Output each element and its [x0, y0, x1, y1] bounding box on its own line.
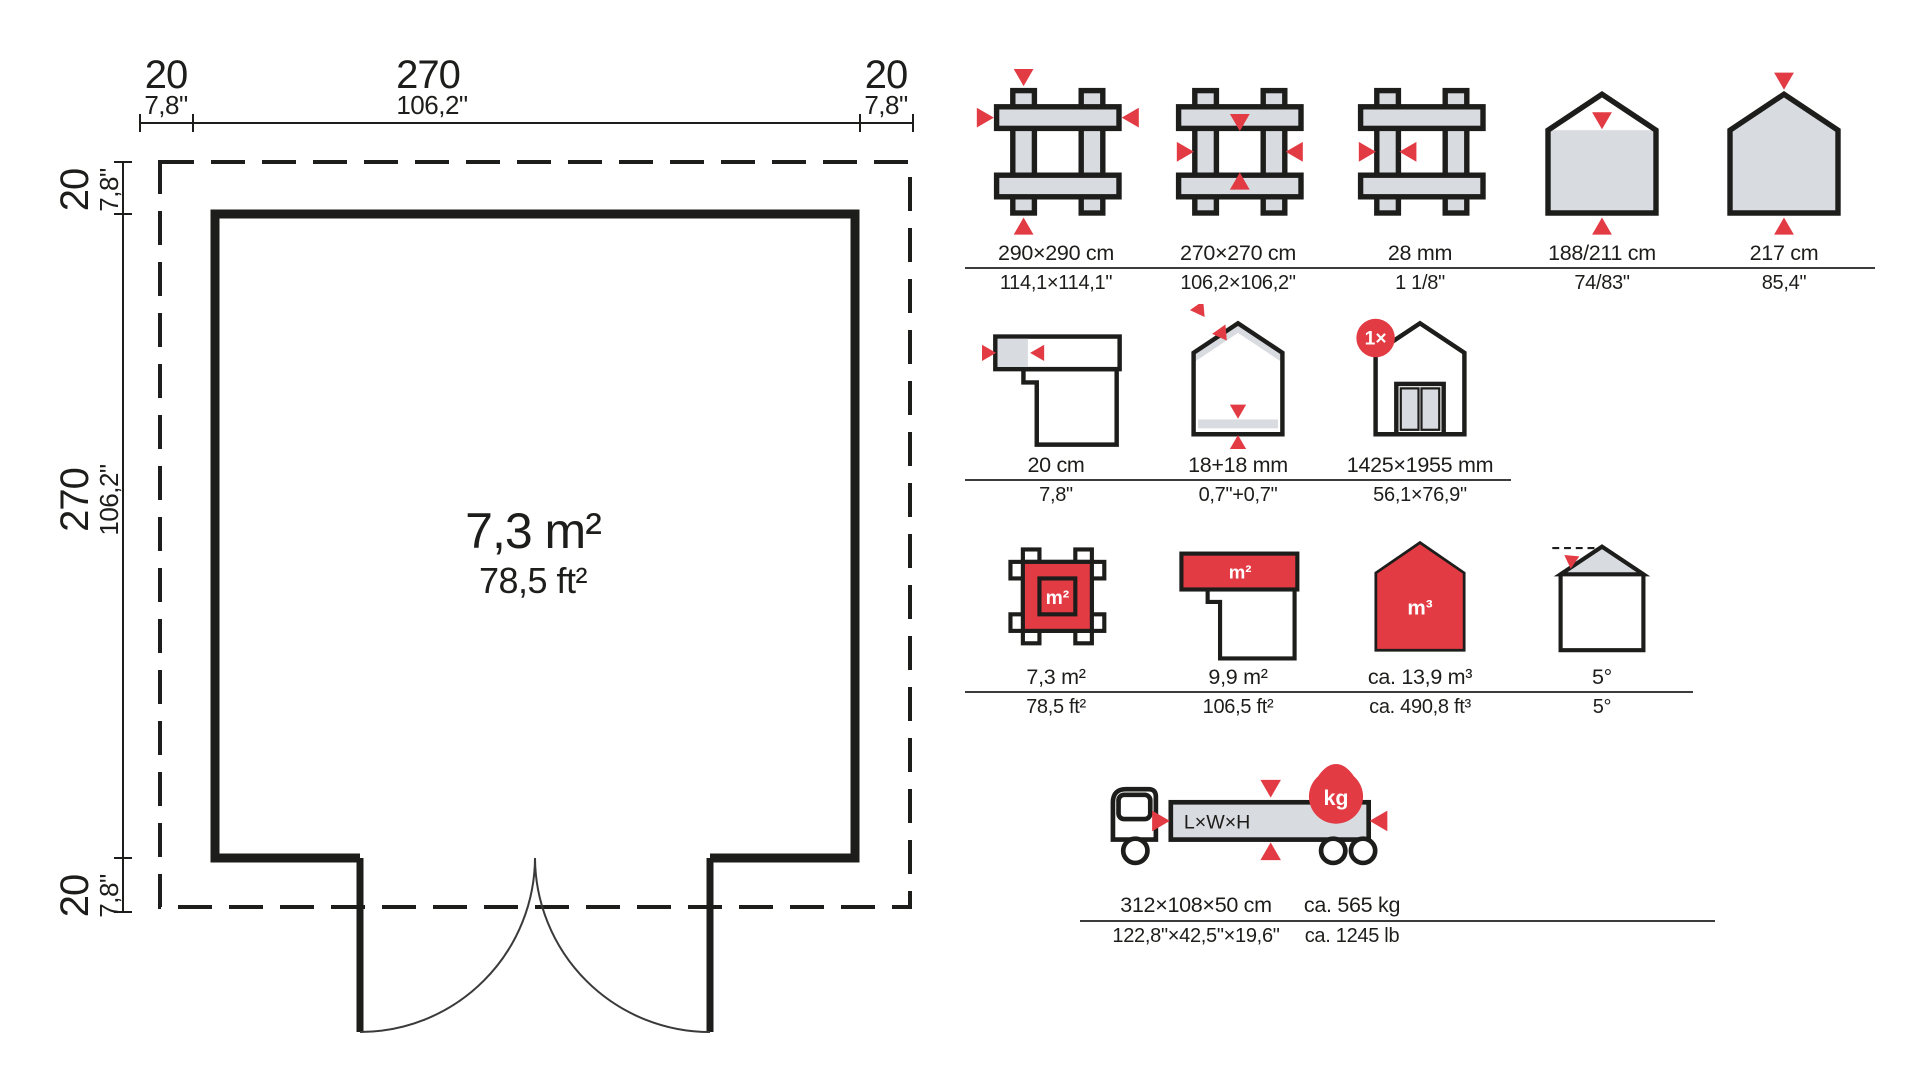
left-dim-label-bottom: 20 7,8": [53, 874, 124, 918]
metric-labels: 20 cm 18+18 mm 1425×1955 mm: [965, 452, 1511, 479]
spec-cell: [965, 304, 1147, 452]
spec-cell: m²: [965, 526, 1147, 664]
spec-metric-label: 7,3 m²: [965, 664, 1147, 691]
spec-cell: [1147, 60, 1329, 240]
spec-cell: [965, 60, 1147, 240]
spec-cell: [1329, 60, 1511, 240]
top-dimension-line: [140, 114, 913, 132]
spec-cell: [1693, 60, 1875, 240]
spec-metric-label: 290×290 cm: [965, 240, 1147, 267]
spec-imperial-label: 106,5 ft²: [1147, 693, 1329, 721]
spec-metric-label: 1425×1955 mm: [1329, 452, 1511, 479]
spec-metric-label: 18+18 mm: [1147, 452, 1329, 479]
package-dims-label: L×W×H: [1184, 811, 1250, 833]
spec-metric-label: 270×270 cm: [1147, 240, 1329, 267]
svg-text:20: 20: [53, 169, 97, 212]
unit-label: m²: [1229, 561, 1252, 582]
door-leaves: [360, 858, 710, 1032]
imperial-labels: 78,5 ft² 106,5 ft² ca. 490,8 ft³ 5°: [965, 693, 1693, 721]
spec-cell: m³: [1329, 526, 1511, 664]
spec-imperial-label: ca. 1245 lb: [1272, 922, 1432, 950]
spec-metric-label: 188/211 cm: [1511, 240, 1693, 267]
door-swing-arcs: [360, 858, 710, 1032]
svg-text:7,8": 7,8": [864, 90, 908, 120]
spec-imperial-label: 1 1/8": [1329, 269, 1511, 297]
svg-text:7,8": 7,8": [144, 90, 188, 120]
quantity-badge-label: 1×: [1365, 329, 1387, 350]
svg-text:7,8": 7,8": [94, 874, 124, 918]
imperial-labels: 7,8" 0,7"+0,7" 56,1×76,9": [965, 481, 1511, 509]
spec-row-3: m² m² m³ 7,3 m² 9,9 m²: [965, 522, 1693, 721]
spec-imperial-label: 106,2×106,2": [1147, 269, 1329, 297]
unit-label: m²: [1046, 588, 1070, 609]
spec-imperial-label: 5°: [1511, 693, 1693, 721]
spec-cell: [1147, 304, 1329, 452]
spec-imperial-label: 74/83": [1511, 269, 1693, 297]
spec-cell: 1×: [1329, 304, 1511, 452]
transport-dimensions-icon: L×W×H kg: [1098, 750, 1406, 890]
svg-text:7,8": 7,8": [94, 168, 124, 212]
spec-row-2: 1× 20 cm 18+18 mm 1425×1955 mm 7,8" 0,7"…: [965, 302, 1511, 509]
weight-unit-label: kg: [1323, 786, 1348, 810]
imperial-labels: 122,8"×42,5"×19,6" ca. 1245 lb: [1080, 922, 1715, 950]
metric-labels: 312×108×50 cm ca. 565 kg: [1080, 892, 1715, 920]
spec-imperial-label: ca. 490,8 ft³: [1329, 693, 1511, 721]
spec-metric-label: 28 mm: [1329, 240, 1511, 267]
door-size-icon: 1×: [1346, 304, 1494, 452]
eave-ridge-height-icon: [1512, 60, 1692, 240]
product-spec-sheet: { "floor_plan": { "area_primary": "7,3 m…: [0, 0, 1920, 1080]
unit-label: m³: [1407, 596, 1432, 619]
spec-imperial-label: 85,4": [1693, 269, 1875, 297]
floor-area-icon: m²: [987, 526, 1125, 664]
spec-cell: [1511, 526, 1693, 664]
left-dim-label-middle: 270 106,2": [53, 464, 124, 536]
spec-metric-label: ca. 13,9 m³: [1329, 664, 1511, 691]
svg-text:106,2": 106,2": [94, 464, 124, 536]
metric-labels: 7,3 m² 9,9 m² ca. 13,9 m³ 5°: [965, 664, 1693, 691]
spec-row-1: 290×290 cm 270×270 cm 28 mm 188/211 cm 2…: [965, 56, 1875, 297]
wall-thickness-icon: [1330, 60, 1510, 240]
roof-area-icon: m²: [1169, 526, 1307, 664]
roof-overhang-icon: [982, 304, 1130, 452]
imperial-labels: 114,1×114,1" 106,2×106,2" 1 1/8" 74/83" …: [965, 269, 1875, 297]
spec-metric-label: 5°: [1511, 664, 1693, 691]
top-dim-label-right: 20 7,8": [864, 53, 908, 120]
floor-plan-diagram: 20 7,8" 270 106,2" 20 7,8" 20 7,8" 270 1…: [0, 0, 960, 1080]
spec-imperial-label: 56,1×76,9": [1329, 481, 1511, 509]
truck-window: [1119, 795, 1151, 819]
spec-row-4: L×W×H kg 312×108×50 cm ca. 565 kg 122,8"…: [1080, 748, 1715, 950]
spec-cell: m²: [1147, 526, 1329, 664]
spec-metric-label: 20 cm: [965, 452, 1147, 479]
spec-imperial-label: 114,1×114,1": [965, 269, 1147, 297]
spec-imperial-label: 78,5 ft²: [965, 693, 1147, 721]
top-dim-label-left: 20 7,8": [144, 53, 188, 120]
roof-floor-thickness-icon: [1164, 304, 1312, 452]
svg-text:270: 270: [53, 468, 97, 532]
outer-dimensions-icon: [966, 60, 1146, 240]
spec-metric-label: ca. 565 kg: [1272, 892, 1432, 919]
top-dim-label-center: 270 106,2": [396, 53, 468, 120]
trailer-wheel: [1321, 839, 1345, 863]
svg-text:106,2": 106,2": [396, 90, 468, 120]
inner-dimensions-icon: [1148, 60, 1328, 240]
spec-cell: [1511, 60, 1693, 240]
metric-labels: 290×290 cm 270×270 cm 28 mm 188/211 cm 2…: [965, 240, 1875, 267]
roof-pitch-icon: [1533, 526, 1671, 664]
spec-imperial-label: 7,8": [965, 481, 1147, 509]
spec-imperial-label: 0,7"+0,7": [1147, 481, 1329, 509]
volume-icon: m³: [1351, 526, 1489, 664]
left-dimension-line: [114, 162, 132, 912]
floor-area-metric: 7,3 m²: [465, 503, 601, 559]
left-dim-label-top: 20 7,8": [53, 168, 124, 212]
total-height-icon: [1694, 60, 1874, 240]
transport-weight-icon: kg: [1309, 770, 1363, 824]
truck-wheel: [1123, 839, 1147, 863]
spec-metric-label: 9,9 m²: [1147, 664, 1329, 691]
svg-text:20: 20: [53, 875, 97, 918]
spec-metric-label: 217 cm: [1693, 240, 1875, 267]
floor-area-imperial: 78,5 ft²: [479, 560, 588, 601]
trailer-wheel: [1351, 839, 1375, 863]
